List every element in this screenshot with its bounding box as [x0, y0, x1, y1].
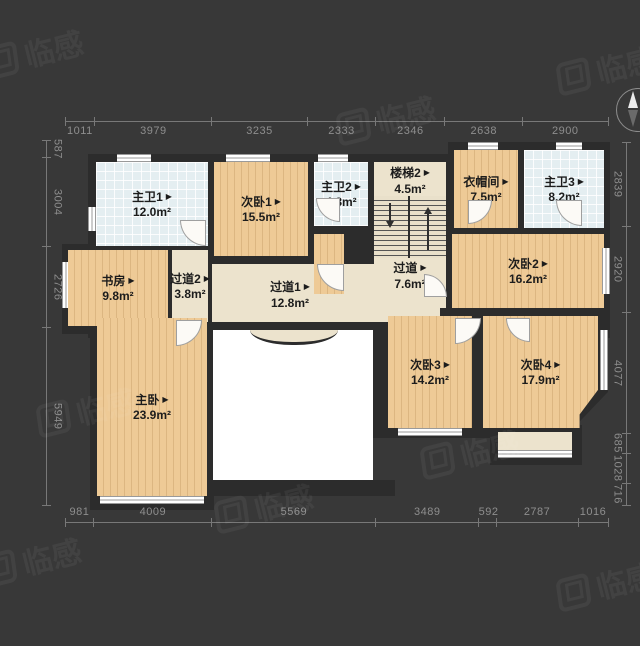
- room-link-icon: ▶: [420, 264, 426, 272]
- room-bedroom-4[interactable]: 次卧4▶ 17.9m²: [483, 316, 598, 428]
- room-link-icon: ▶: [578, 178, 584, 186]
- watermark-logo-icon: [0, 40, 20, 81]
- watermark: 临感: [552, 551, 640, 618]
- dimension-tick: [211, 117, 212, 126]
- window: [602, 248, 610, 294]
- stairs-down-arrow-icon: [389, 203, 391, 225]
- room-link-icon: ▶: [502, 178, 508, 186]
- dimension-label: 1011: [65, 126, 95, 137]
- dimension-label: 2726: [50, 247, 64, 328]
- watermark-logo-icon: [555, 56, 592, 97]
- dimension-label: 685: [610, 433, 624, 453]
- dimension-label: 1028: [610, 453, 624, 483]
- watermark-logo-icon: [555, 572, 592, 613]
- room-link-icon: ▶: [304, 283, 310, 291]
- dimension-tick: [211, 518, 212, 527]
- dimension-label: 3979: [95, 126, 212, 137]
- dimension-tick: [444, 117, 445, 126]
- watermark-logo-icon: [0, 548, 18, 589]
- room-link-icon: ▶: [204, 275, 210, 283]
- room-cloakroom[interactable]: 衣帽间▶ 7.5m²: [454, 150, 518, 228]
- dimension-line-left: [46, 140, 47, 505]
- room-link-icon: ▶: [162, 396, 168, 404]
- dimension-tick: [42, 505, 51, 506]
- dimension-tick: [622, 505, 631, 506]
- room-bedroom-2[interactable]: 次卧2▶ 16.2m²: [452, 234, 604, 308]
- watermark: 临感: [0, 527, 86, 594]
- dimension-label: 981: [65, 507, 94, 518]
- dimension-tick: [608, 117, 609, 126]
- stairs-up-arrow-icon: [427, 210, 429, 250]
- dimension-line-right: [626, 142, 627, 505]
- dimension-line-bottom: [65, 522, 608, 523]
- dimension-tick: [65, 117, 66, 126]
- watermark-logo-icon: [335, 106, 372, 147]
- room-label-stairs-2[interactable]: 楼梯2▶ 4.5m²: [366, 163, 454, 199]
- room-link-icon: ▶: [275, 198, 281, 206]
- room-link-icon: ▶: [128, 277, 134, 285]
- dimension-tick: [307, 117, 308, 126]
- window: [100, 496, 204, 504]
- dimension-tick: [93, 518, 94, 527]
- dimension-label: 3489: [376, 507, 479, 518]
- dimension-label: 4077: [610, 312, 624, 433]
- watermark: 临感: [332, 85, 440, 152]
- dimension-label: 2920: [610, 226, 624, 312]
- staircase: [374, 196, 446, 258]
- room-link-icon: ▶: [554, 361, 560, 369]
- room-link-icon: ▶: [542, 260, 548, 268]
- watermark-logo-icon: [419, 440, 456, 481]
- window: [88, 207, 96, 231]
- room-link-icon: ▶: [444, 361, 450, 369]
- room-link-icon: ▶: [166, 193, 172, 201]
- window: [556, 142, 582, 150]
- dimension-label: 2638: [445, 126, 523, 137]
- room-study[interactable]: 书房▶ 9.8m²: [68, 250, 168, 326]
- floorplan-viewer: 主卫1▶ 12.0m² 次卧1▶ 15.5m² 主卫2▶ 4.8m² 衣帽间▶ …: [0, 0, 640, 646]
- dimension-label: 592: [479, 507, 496, 518]
- dimension-label: 716: [610, 484, 624, 505]
- dimension-tick: [375, 518, 376, 527]
- room-bedroom-1[interactable]: 次卧1▶ 15.5m²: [214, 162, 308, 256]
- dimension-label: 3004: [50, 157, 64, 246]
- room-link-icon: ▶: [355, 183, 361, 191]
- dimension-tick: [608, 518, 609, 527]
- dimension-tick: [94, 117, 95, 126]
- dimension-label: 2787: [496, 507, 578, 518]
- room-link-icon: ▶: [424, 169, 430, 177]
- dimension-label: 2900: [523, 126, 608, 137]
- window: [468, 142, 498, 150]
- room-corridor-2[interactable]: 过道2▶ 3.8m²: [172, 250, 208, 322]
- room-master-bath-2[interactable]: 主卫2▶ 4.8m²: [314, 162, 368, 226]
- dimension-tick: [522, 117, 523, 126]
- dimension-label: 4009: [94, 507, 212, 518]
- dimension-label: 587: [50, 140, 64, 157]
- watermark-logo-icon: [35, 398, 72, 439]
- void-opening: [213, 330, 373, 482]
- window: [117, 154, 151, 162]
- dimension-tick: [578, 518, 579, 527]
- window: [226, 154, 270, 162]
- compass-icon: [616, 88, 640, 132]
- dimension-tick: [478, 518, 479, 527]
- watermark: 临感: [0, 19, 88, 86]
- dimension-label: 2839: [610, 142, 624, 226]
- dimension-label: 3235: [212, 126, 307, 137]
- dimension-label: 1016: [578, 507, 608, 518]
- dimension-tick: [65, 518, 66, 527]
- watermark-logo-icon: [213, 494, 250, 535]
- window: [318, 154, 348, 162]
- dimension-tick: [496, 518, 497, 527]
- stair-divider: [408, 196, 410, 258]
- window: [600, 330, 608, 390]
